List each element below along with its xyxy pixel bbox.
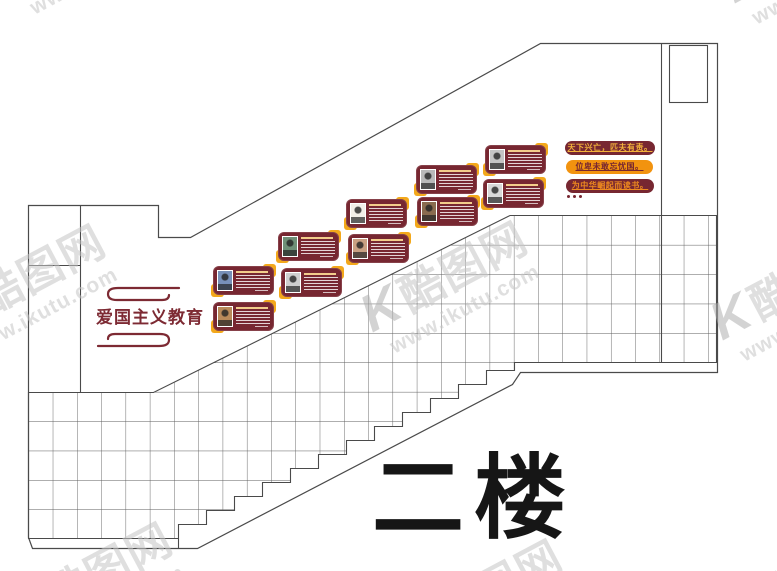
plaque-text-lines <box>369 204 403 224</box>
portrait-photo <box>282 236 298 257</box>
plaque-text-lines <box>371 239 405 259</box>
portrait-photo <box>487 183 503 204</box>
memorial-plaque <box>281 268 342 297</box>
portrait-photo <box>285 272 301 293</box>
wall-title: 爱国主义教育 <box>92 303 208 328</box>
plaque-board <box>417 197 478 226</box>
memorial-plaque <box>346 199 407 228</box>
floor-label: 二楼 <box>372 447 576 553</box>
portrait-photo <box>489 149 505 170</box>
plaque-board <box>348 234 409 263</box>
top-right-pillar <box>670 46 708 103</box>
memorial-plaque <box>417 197 478 226</box>
cloud-scroll-ornament-icon <box>95 326 173 350</box>
plaque-board <box>485 145 546 174</box>
plaque-text-lines <box>236 307 270 327</box>
quote-banner: 位卑未敢忘忧国。 <box>566 160 653 174</box>
plaque-text-lines <box>440 202 474 222</box>
plaque-board <box>483 179 544 208</box>
portrait-photo <box>350 203 366 224</box>
plaque-text-lines <box>304 273 338 293</box>
plaque-board <box>416 165 477 194</box>
plaque-text-lines <box>439 170 473 190</box>
quote-banner: 天下兴亡，匹夫有责。 <box>565 141 655 155</box>
plaque-text-lines <box>506 184 540 204</box>
portrait-photo <box>420 169 436 190</box>
portrait-photo <box>217 306 233 327</box>
plaque-board <box>346 199 407 228</box>
plaque-board <box>278 232 339 261</box>
plaque-text-lines <box>508 150 542 170</box>
memorial-plaque <box>213 302 274 331</box>
portrait-photo <box>352 238 368 259</box>
memorial-plaque <box>278 232 339 261</box>
memorial-plaque <box>483 179 544 208</box>
portrait-photo <box>421 201 437 222</box>
plaque-board <box>281 268 342 297</box>
memorial-plaque <box>348 234 409 263</box>
stairwell-design-canvas: 天下兴亡，匹夫有责。 位卑未敢忘忧国。 为中华崛起而读书。 爱国主义教育 二楼 … <box>0 0 777 571</box>
portrait-photo <box>217 270 233 291</box>
plaque-text-lines <box>236 271 270 291</box>
memorial-plaque <box>213 266 274 295</box>
memorial-plaque <box>485 145 546 174</box>
plaque-board <box>213 302 274 331</box>
quote-banner: 为中华崛起而读书。 <box>566 179 654 193</box>
banner-ellipsis-dots <box>567 195 582 198</box>
plaque-board <box>213 266 274 295</box>
memorial-plaque <box>416 165 477 194</box>
plaque-text-lines <box>301 237 335 257</box>
